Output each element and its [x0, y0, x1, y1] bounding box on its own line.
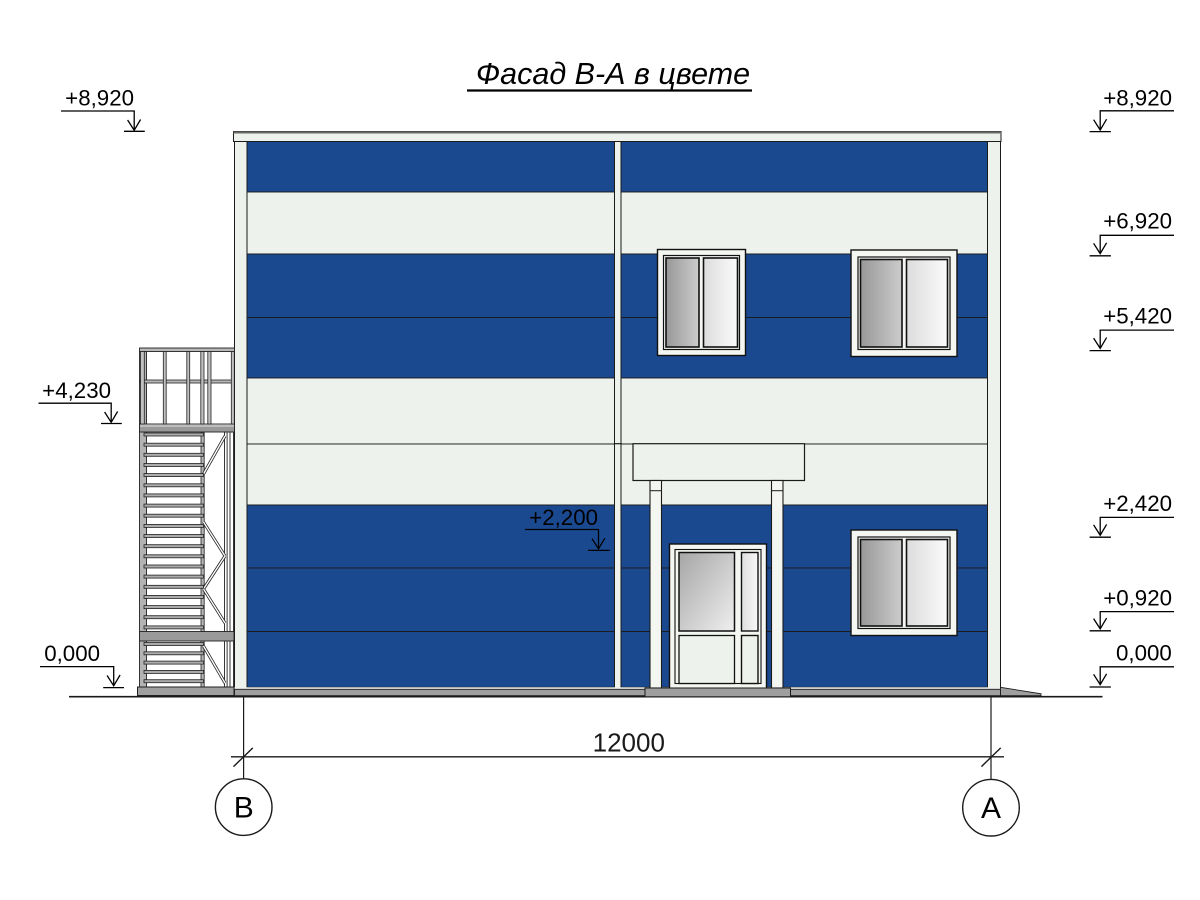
svg-text:+6,920: +6,920: [1103, 209, 1172, 234]
svg-text:+2,420: +2,420: [1103, 491, 1172, 516]
svg-text:+0,920: +0,920: [1103, 586, 1172, 611]
svg-text:+5,420: +5,420: [1103, 304, 1172, 329]
svg-text:А: А: [981, 792, 1001, 825]
svg-text:В: В: [234, 792, 254, 825]
svg-text:Фасад В-А в цвете: Фасад В-А в цвете: [476, 57, 750, 91]
svg-text:0,000: 0,000: [1116, 641, 1172, 666]
svg-text:+4,230: +4,230: [42, 378, 111, 403]
svg-text:+2,200: +2,200: [529, 505, 598, 530]
svg-text:+8,920: +8,920: [1103, 86, 1172, 111]
svg-text:12000: 12000: [593, 728, 665, 758]
svg-text:0,000: 0,000: [44, 641, 100, 666]
svg-text:+8,920: +8,920: [65, 86, 134, 111]
